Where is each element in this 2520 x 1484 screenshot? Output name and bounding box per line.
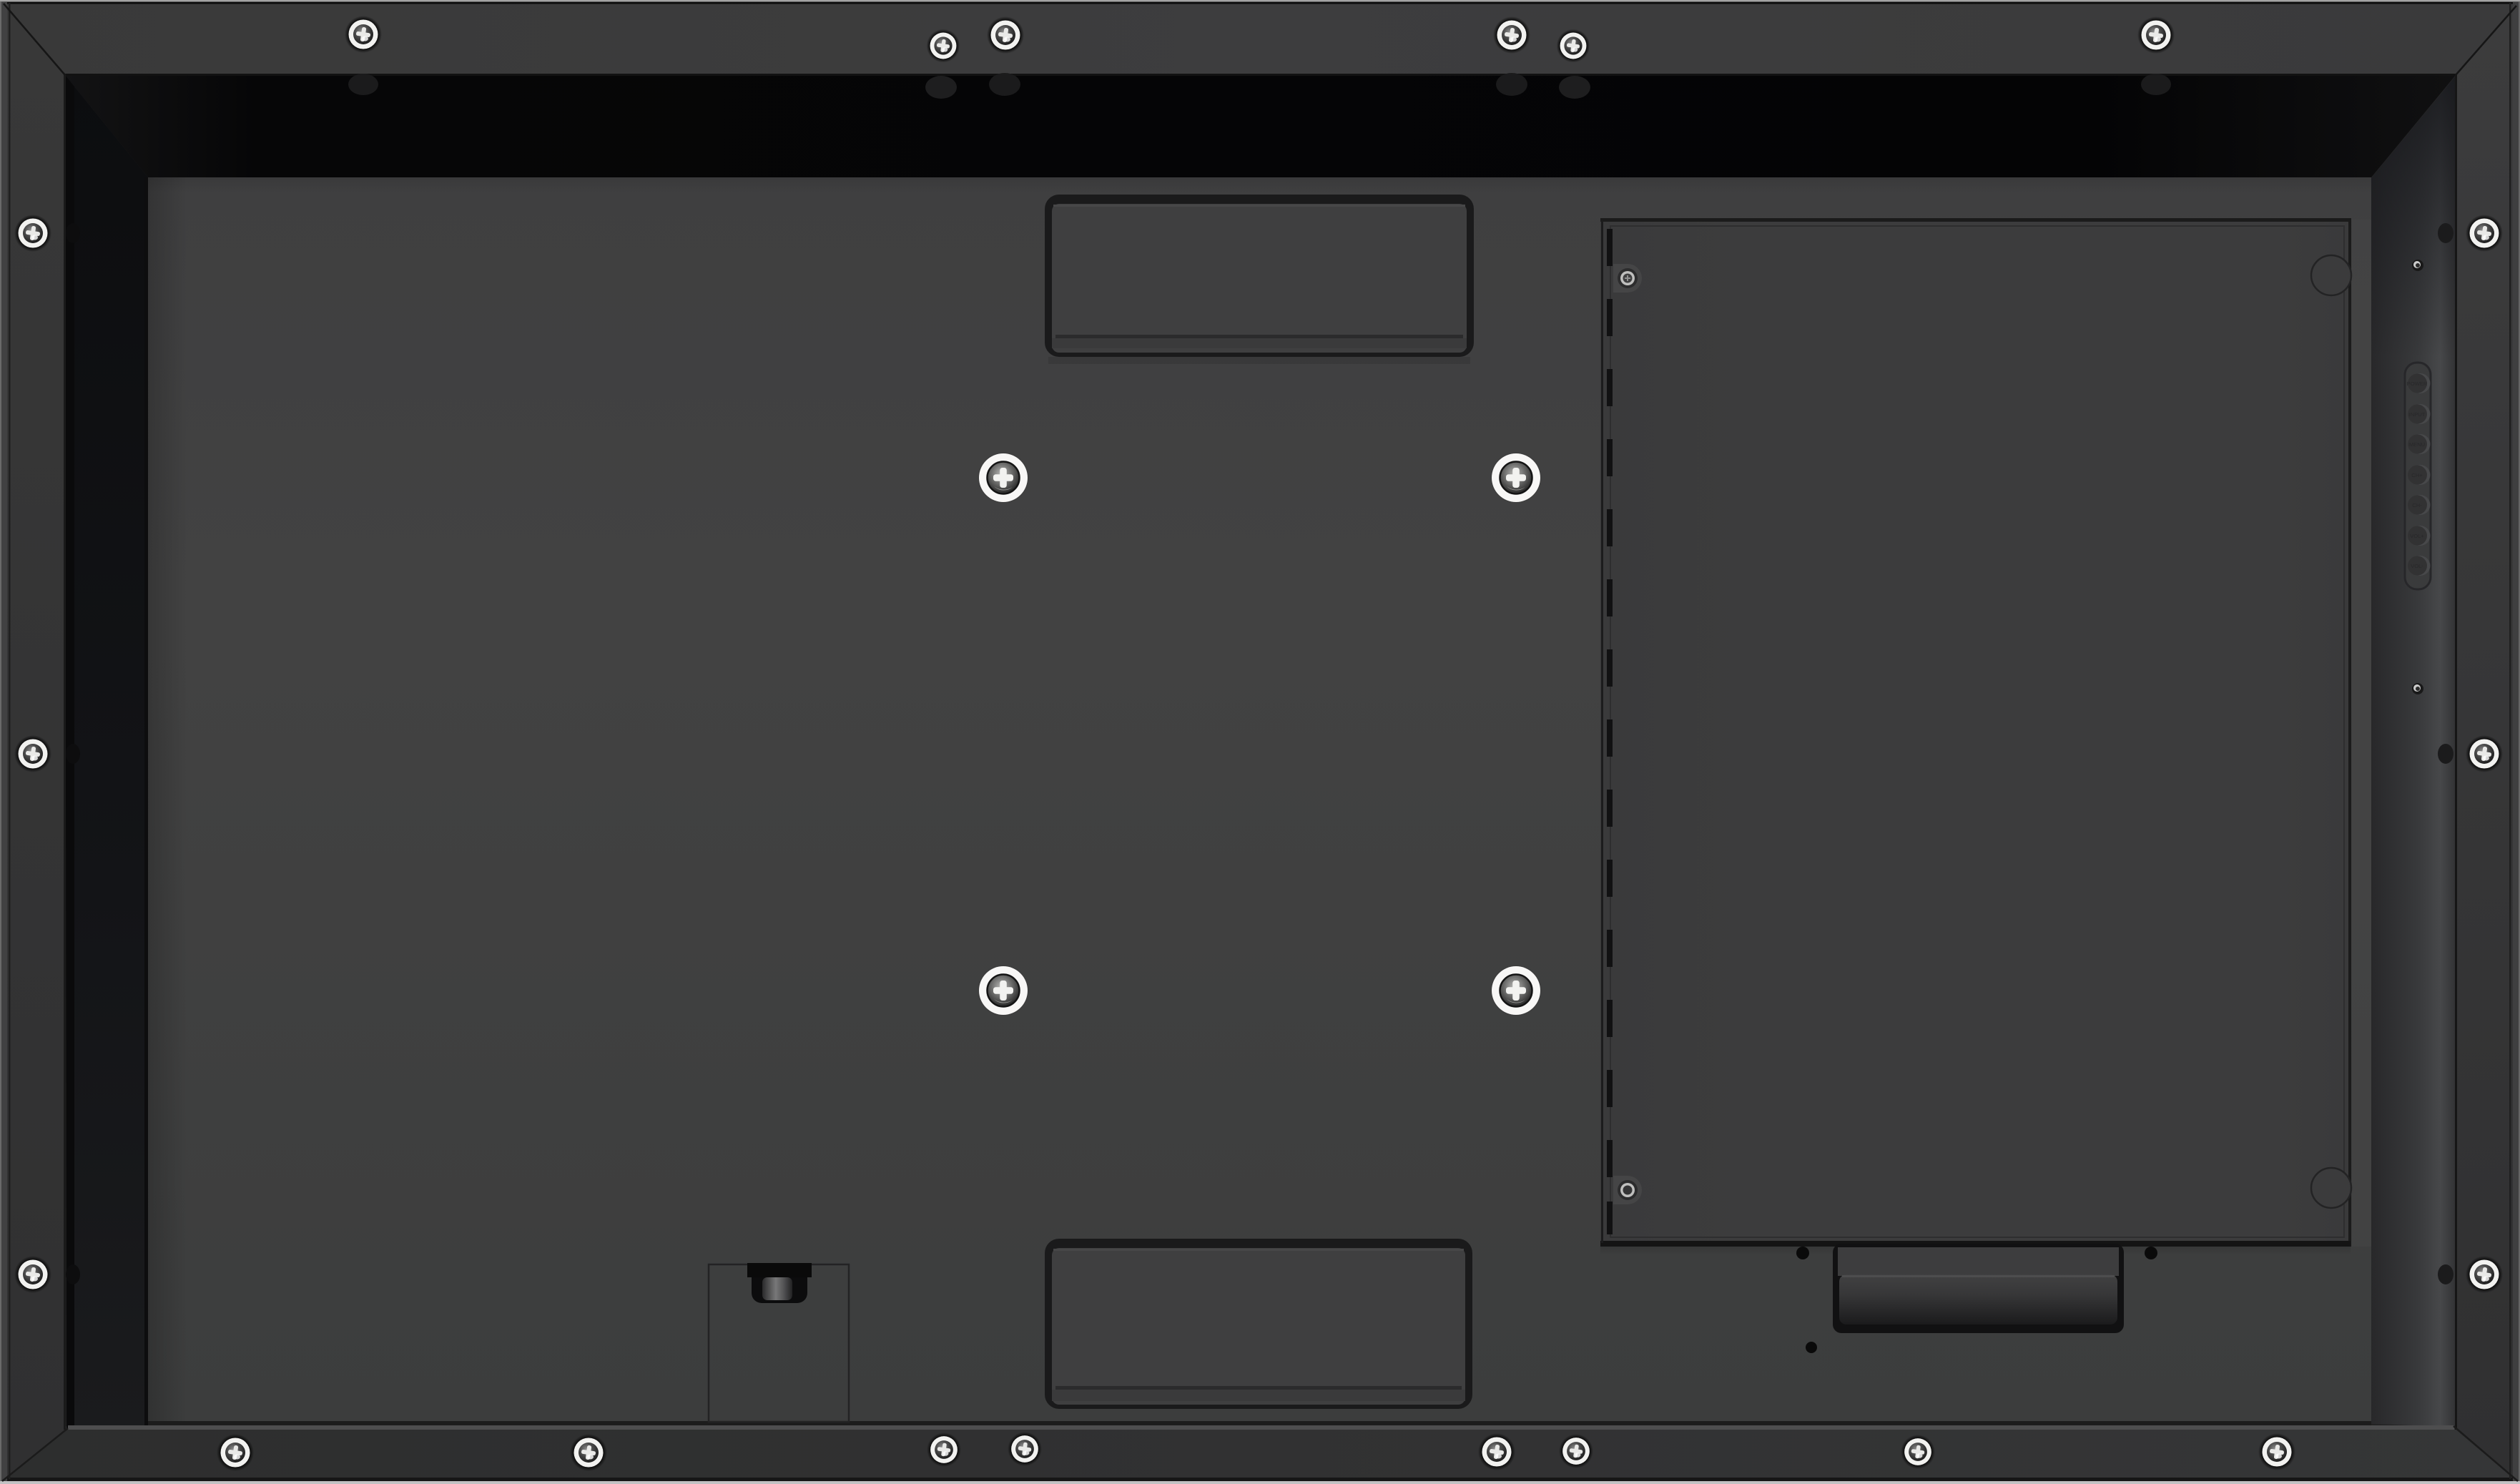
svg-text:CH-: CH- — [2412, 502, 2422, 508]
svg-text:POWER: POWER — [2407, 380, 2428, 387]
svg-text:VOL+: VOL+ — [2410, 533, 2424, 539]
svg-text:VOL-: VOL- — [2411, 563, 2423, 569]
svg-text:MENU: MENU — [2409, 441, 2425, 448]
svg-text:CH+: CH+ — [2411, 472, 2423, 478]
svg-text:INPUT: INPUT — [2409, 411, 2426, 418]
